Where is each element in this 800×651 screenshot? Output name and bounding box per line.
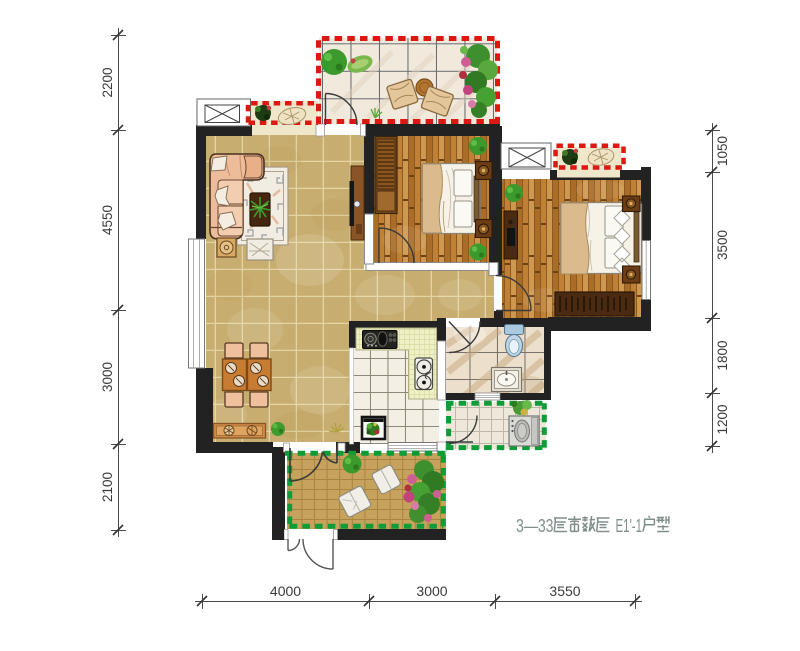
svg-text:3550: 3550	[549, 583, 580, 599]
svg-text:E1'-1: E1'-1	[616, 516, 643, 536]
svg-text:3000: 3000	[100, 362, 115, 392]
svg-text:2100: 2100	[100, 472, 115, 502]
svg-text:4000: 4000	[270, 583, 301, 599]
svg-text:1200: 1200	[715, 404, 730, 434]
svg-text:3—33: 3—33	[516, 516, 554, 536]
svg-text:1800: 1800	[715, 340, 730, 370]
svg-text:3500: 3500	[715, 230, 730, 260]
svg-text:2200: 2200	[100, 67, 115, 97]
svg-text:4550: 4550	[100, 205, 115, 235]
svg-text:3000: 3000	[416, 583, 447, 599]
svg-text:1050: 1050	[715, 136, 730, 166]
